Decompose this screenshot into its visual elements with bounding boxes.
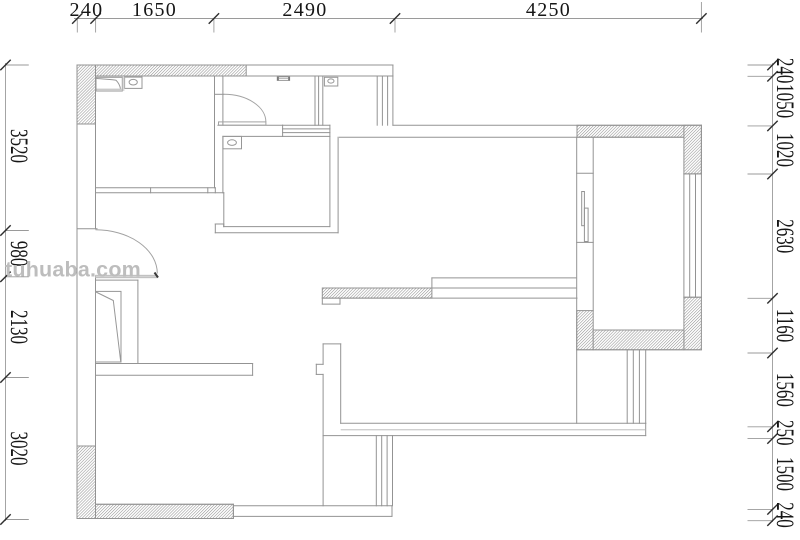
svg-text:3020: 3020 bbox=[5, 432, 33, 466]
svg-text:4250: 4250 bbox=[526, 0, 571, 21]
svg-text:1020: 1020 bbox=[771, 133, 799, 167]
svg-text:tuhuaba.com: tuhuaba.com bbox=[5, 258, 141, 282]
svg-text:1160: 1160 bbox=[771, 309, 799, 342]
svg-text:2490: 2490 bbox=[282, 0, 327, 21]
svg-text:1650: 1650 bbox=[132, 0, 177, 21]
svg-text:1500: 1500 bbox=[771, 457, 799, 491]
svg-text:1050: 1050 bbox=[771, 84, 799, 118]
svg-text:240: 240 bbox=[70, 0, 104, 21]
svg-text:250: 250 bbox=[771, 420, 799, 445]
svg-text:240: 240 bbox=[771, 58, 799, 83]
svg-text:1560: 1560 bbox=[771, 373, 799, 407]
svg-text:2130: 2130 bbox=[5, 310, 33, 344]
svg-text:240: 240 bbox=[771, 502, 799, 527]
svg-text:2630: 2630 bbox=[771, 219, 799, 253]
svg-text:3520: 3520 bbox=[5, 129, 33, 163]
